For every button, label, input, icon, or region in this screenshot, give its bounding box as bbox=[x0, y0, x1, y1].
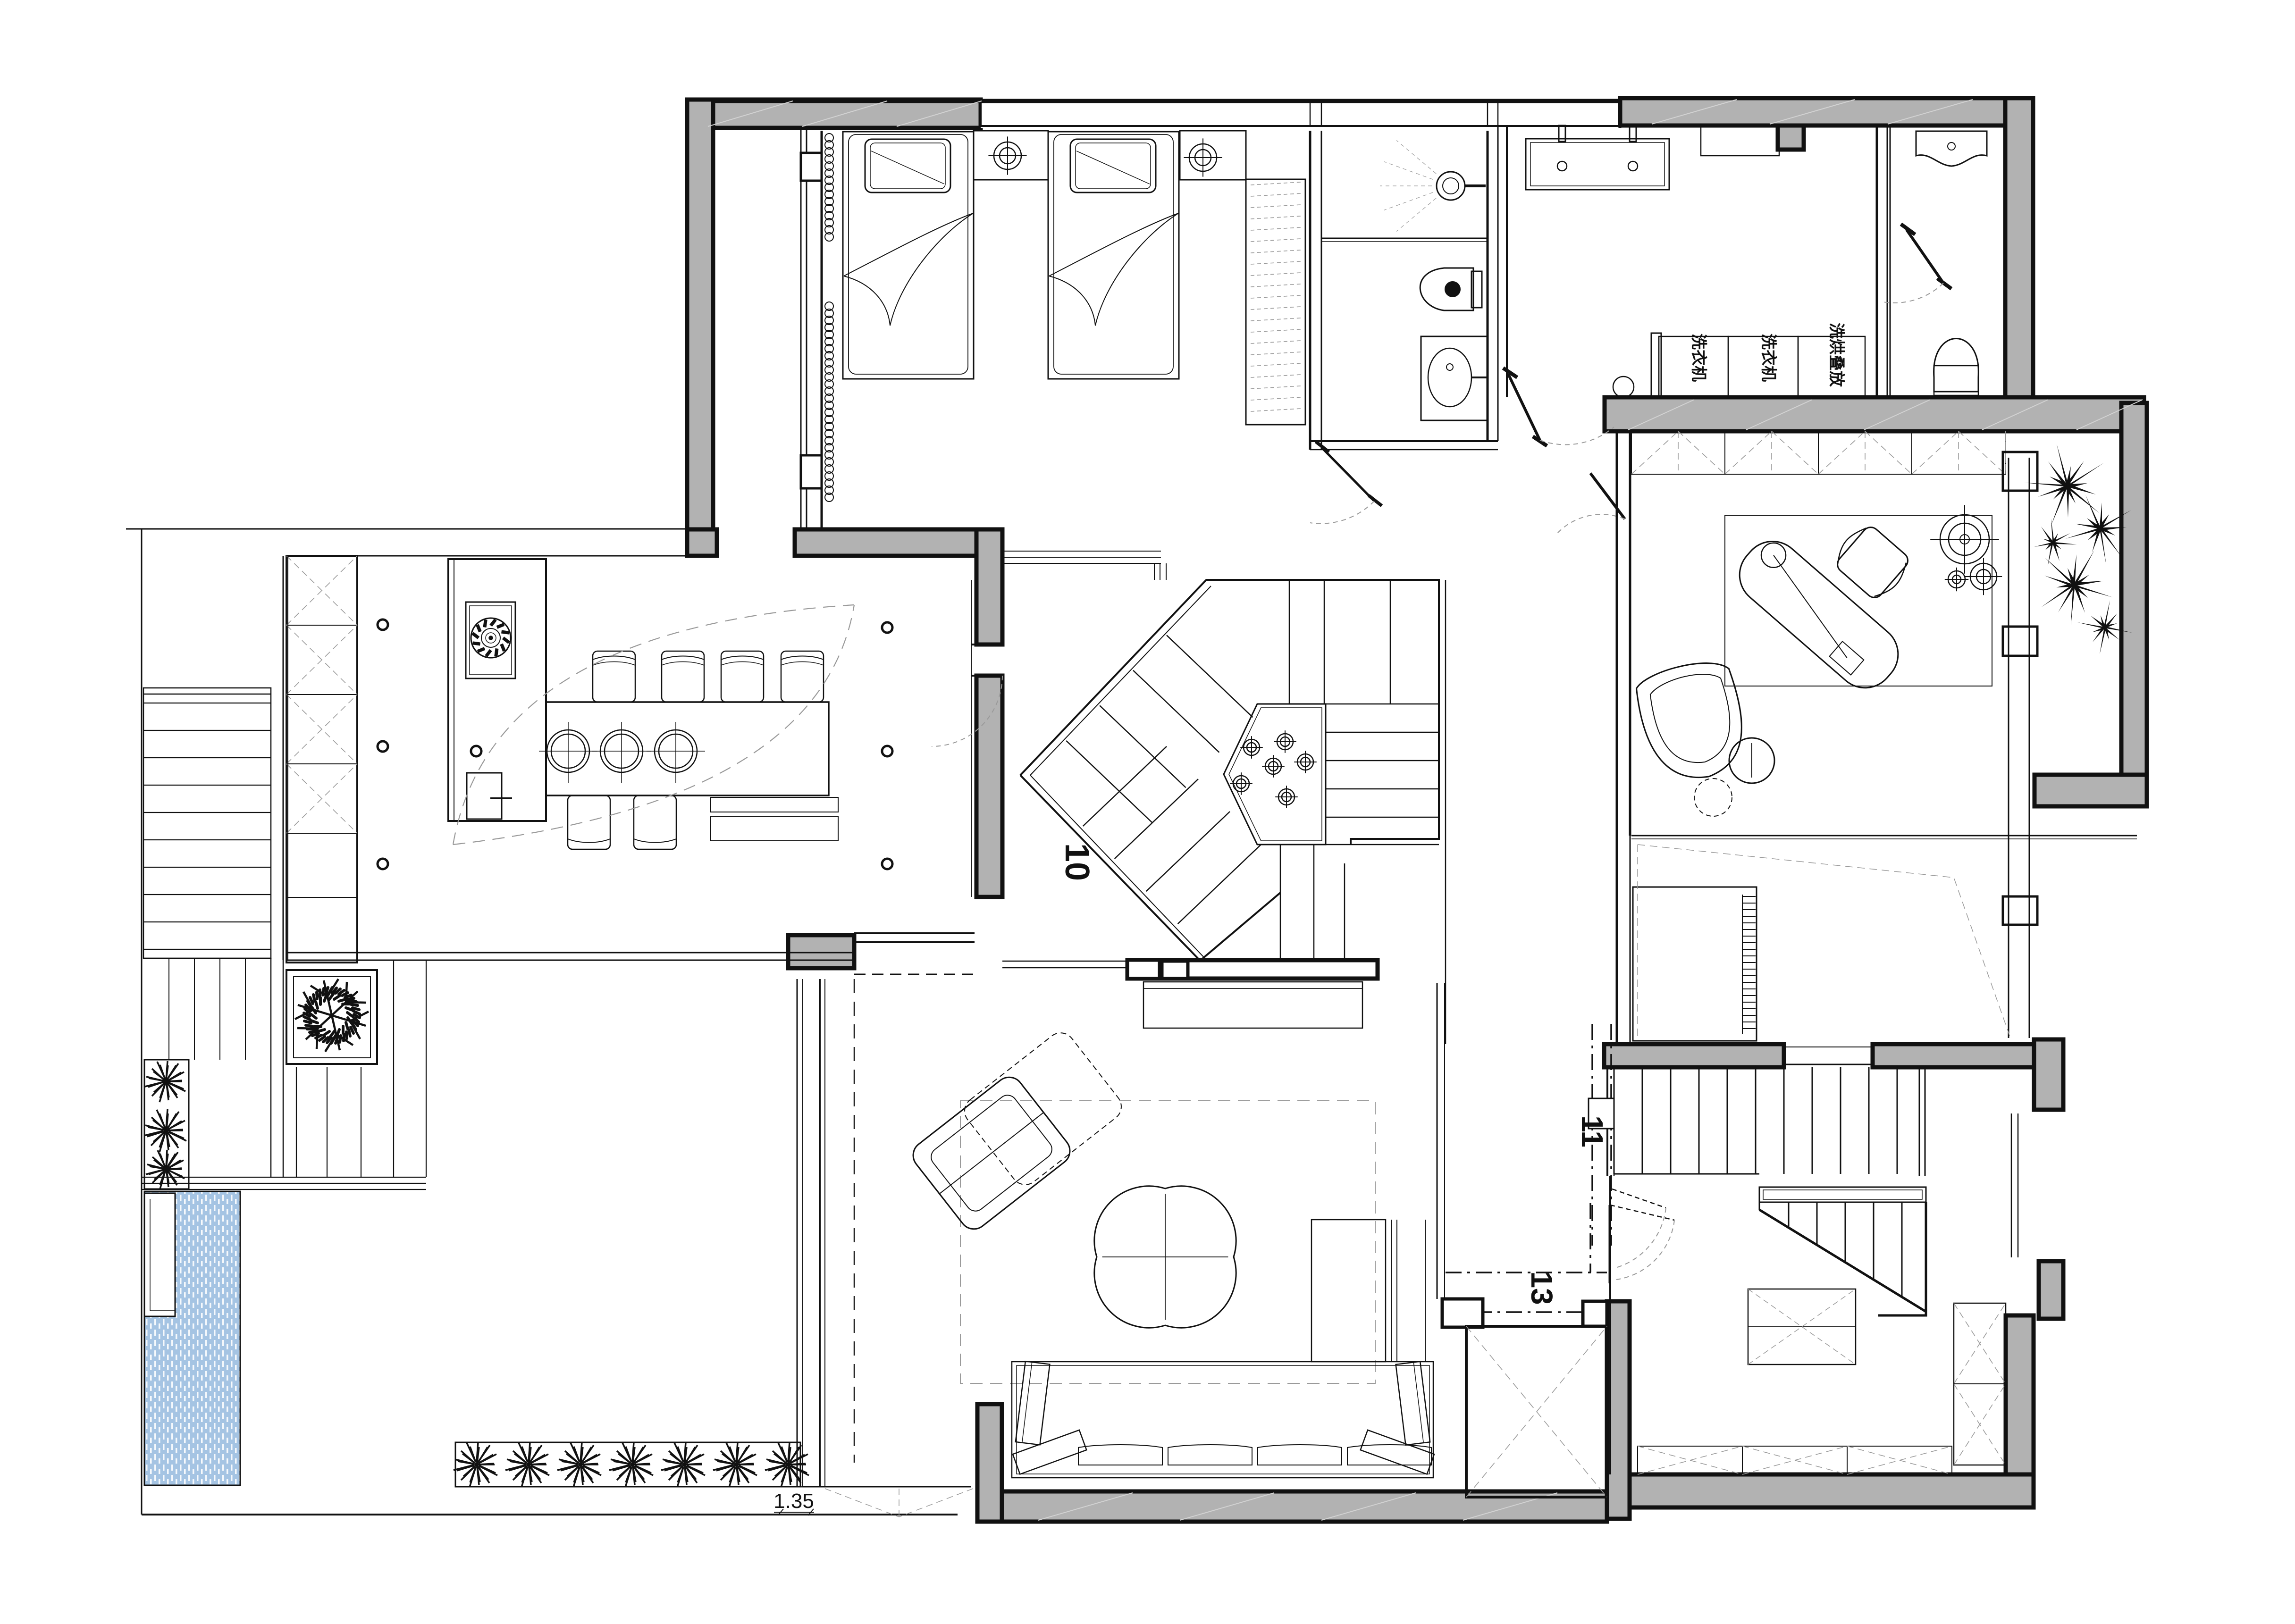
svg-text:13: 13 bbox=[1525, 1271, 1559, 1305]
svg-text:11: 11 bbox=[1575, 1115, 1609, 1147]
svg-text:洗烘叠放: 洗烘叠放 bbox=[1827, 323, 1845, 387]
svg-text:洗衣机: 洗衣机 bbox=[1759, 334, 1777, 382]
svg-text:10: 10 bbox=[1058, 843, 1096, 881]
svg-text:洗衣机: 洗衣机 bbox=[1690, 334, 1707, 382]
svg-text:1.35: 1.35 bbox=[773, 1490, 814, 1513]
